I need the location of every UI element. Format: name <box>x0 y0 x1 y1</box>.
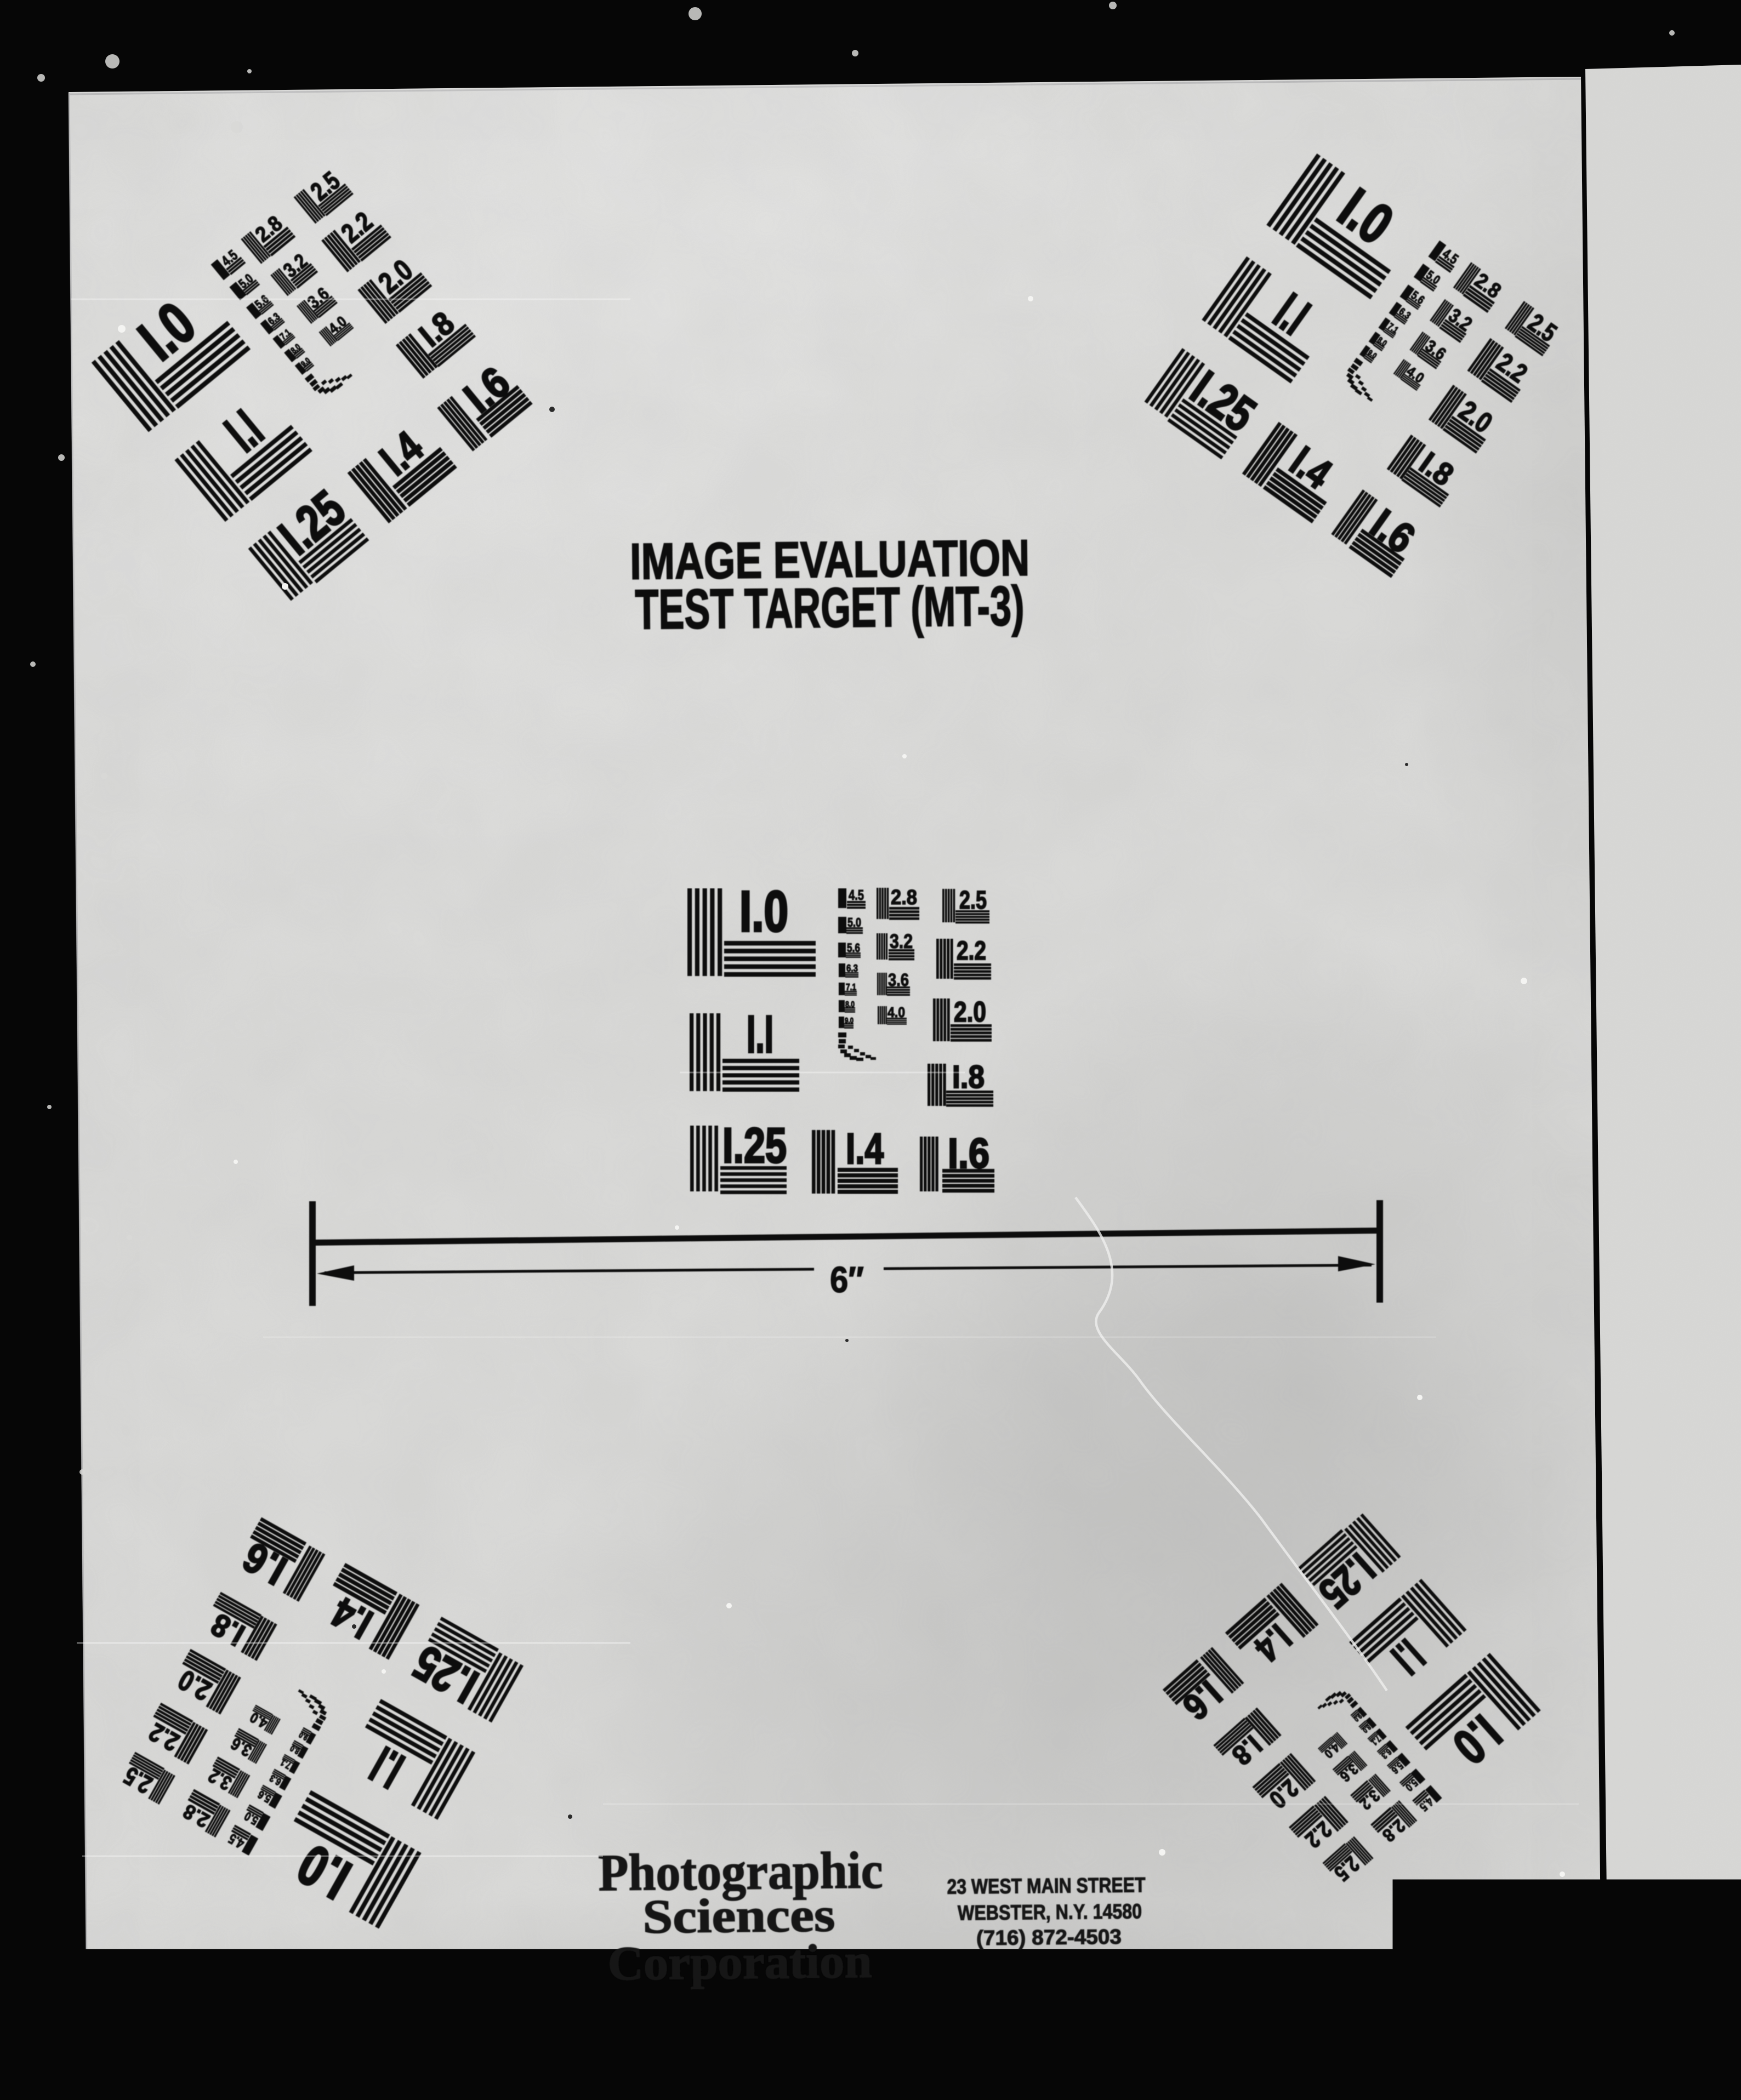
svg-text:(716) 872-4503: (716) 872-4503 <box>976 1926 1122 1950</box>
svg-text:6″: 6″ <box>830 1259 864 1300</box>
svg-text:WEBSTER, N.Y. 14580: WEBSTER, N.Y. 14580 <box>958 1900 1142 1925</box>
svg-text:23 WEST MAIN STREET: 23 WEST MAIN STREET <box>947 1874 1145 1898</box>
svg-text:TEST TARGET (MT-3): TEST TARGET (MT-3) <box>635 575 1025 641</box>
svg-text:Corporation: Corporation <box>607 1935 872 1991</box>
